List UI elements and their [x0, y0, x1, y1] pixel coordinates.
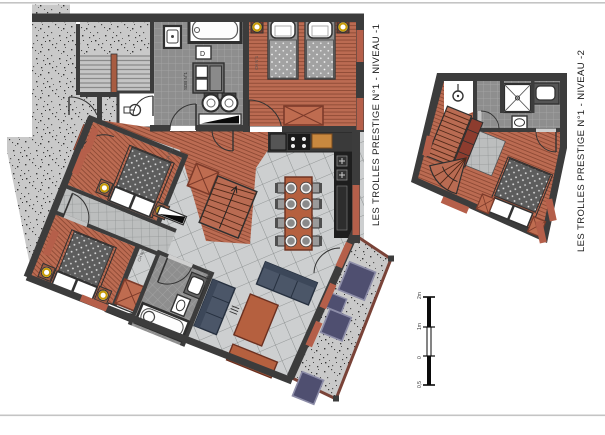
- svg-text:2m: 2m: [417, 292, 423, 299]
- svg-text:LES TROLLES PRESTIGE N°1 - NIV: LES TROLLES PRESTIGE N°1 - NIVEAU -2: [576, 50, 587, 252]
- svg-text:1m: 1m: [417, 323, 423, 330]
- svg-text:CH N°1: CH N°1: [254, 55, 259, 70]
- svg-text:0,5: 0,5: [417, 381, 423, 388]
- svg-text:0: 0: [417, 356, 423, 359]
- svg-text:D: D: [200, 51, 205, 58]
- svg-text:LES TROLLES PRESTIGE N°1 - NIV: LES TROLLES PRESTIGE N°1 - NIVEAU -1: [371, 24, 382, 226]
- svg-text:SDB N°1: SDB N°1: [183, 71, 188, 90]
